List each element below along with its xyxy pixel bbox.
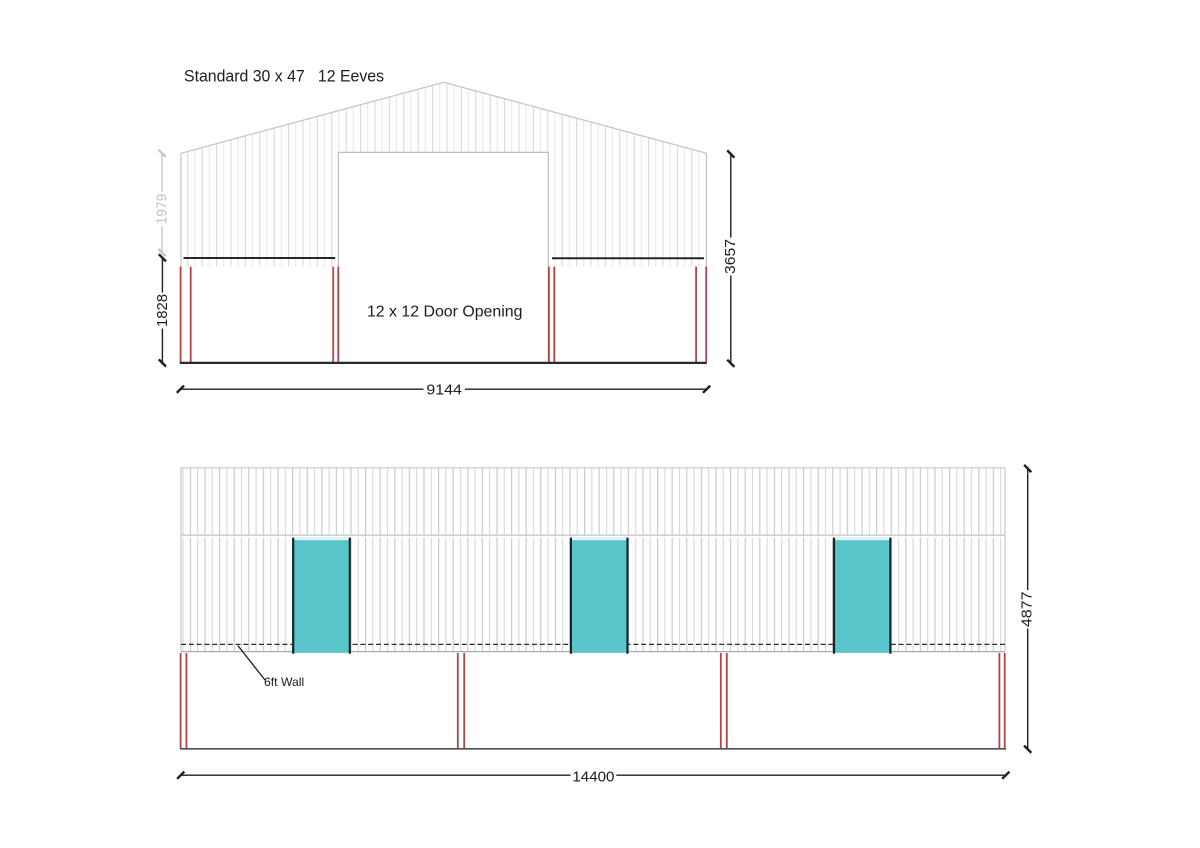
- svg-text:1979: 1979: [154, 194, 170, 225]
- svg-text:4877: 4877: [1018, 591, 1035, 627]
- svg-text:1828: 1828: [154, 294, 171, 327]
- svg-text:Standard 30 x 47 12 Eeves: Standard 30 x 47 12 Eeves: [184, 66, 384, 85]
- svg-text:14400: 14400: [572, 769, 614, 786]
- svg-text:12 x 12 Door Opening: 12 x 12 Door Opening: [367, 303, 523, 320]
- svg-text:6ft Wall: 6ft Wall: [264, 675, 304, 689]
- svg-text:3657: 3657: [722, 239, 739, 274]
- svg-text:9144: 9144: [426, 382, 462, 399]
